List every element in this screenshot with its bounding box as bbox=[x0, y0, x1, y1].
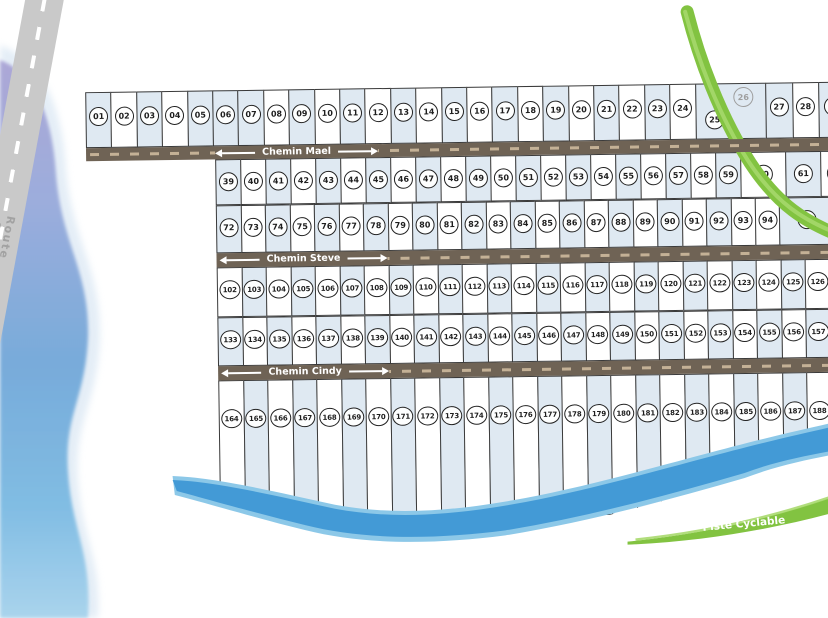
lot-number: 56 bbox=[644, 166, 663, 185]
lot-number: 51 bbox=[519, 168, 538, 187]
lot-86: 86 bbox=[559, 200, 585, 248]
lot-140: 140 bbox=[389, 315, 415, 364]
subdivision-plan-map: Route 295 010203040506070809101112131415… bbox=[0, 0, 828, 618]
lot-114: 114 bbox=[511, 263, 537, 313]
lot-157: 157 bbox=[805, 309, 828, 358]
lot-11: 11 bbox=[339, 88, 366, 144]
lot-number: 46 bbox=[394, 170, 413, 189]
lot-number: 79 bbox=[391, 216, 410, 235]
lot-number: 154 bbox=[734, 323, 755, 342]
lot-number: 19 bbox=[546, 100, 565, 119]
lot-number: 149 bbox=[612, 325, 633, 344]
lot-45: 45 bbox=[365, 157, 392, 203]
lot-168: 168 bbox=[316, 379, 343, 519]
lot-120: 120 bbox=[658, 261, 684, 311]
lot-144: 144 bbox=[487, 313, 513, 362]
arrow-line bbox=[222, 151, 255, 153]
lot-42: 42 bbox=[290, 158, 317, 204]
lot-17: 17 bbox=[492, 86, 519, 142]
lot-number: 121 bbox=[685, 274, 706, 293]
lot-number: 186 bbox=[760, 402, 781, 421]
lot-number: 112 bbox=[464, 277, 485, 296]
lot-number: 80 bbox=[415, 215, 434, 234]
lot-121: 121 bbox=[682, 261, 708, 311]
lot-number: 20 bbox=[572, 100, 591, 119]
lot-46: 46 bbox=[390, 157, 417, 203]
lot-156: 156 bbox=[781, 309, 807, 358]
lot-134: 134 bbox=[242, 317, 268, 366]
arrow-line bbox=[338, 150, 371, 152]
street-label-zone: Chemin Cindy bbox=[221, 364, 389, 380]
lot-122: 122 bbox=[707, 260, 733, 310]
lot-number: 125 bbox=[783, 272, 804, 291]
lot-178: 178 bbox=[561, 375, 588, 515]
lot-number: 136 bbox=[293, 329, 314, 348]
lot-60: 60 bbox=[740, 151, 787, 198]
lot-number: 178 bbox=[564, 404, 585, 423]
lot-number: 153 bbox=[710, 323, 731, 342]
lot-number: 50 bbox=[494, 168, 513, 187]
street-label-zone: Chemin Mael bbox=[215, 144, 378, 159]
lot-number: 117 bbox=[587, 275, 608, 294]
lot-10: 10 bbox=[314, 89, 341, 145]
lot-92: 92 bbox=[706, 198, 732, 246]
lot-61: 61 bbox=[785, 151, 822, 197]
lot-number: 24 bbox=[673, 99, 692, 118]
lot-176: 176 bbox=[512, 376, 539, 516]
lot-number: 168 bbox=[319, 408, 340, 427]
lot-23: 23 bbox=[644, 84, 671, 140]
lot-174: 174 bbox=[463, 377, 490, 517]
lot-18: 18 bbox=[517, 86, 544, 142]
lot-126: 126 bbox=[805, 259, 828, 309]
lot-number: 173 bbox=[441, 406, 462, 425]
lot-141: 141 bbox=[413, 314, 439, 363]
lot-number: 119 bbox=[636, 274, 657, 293]
street-name: Chemin Mael bbox=[255, 146, 338, 157]
lot-number: 76 bbox=[317, 217, 336, 236]
lot-135: 135 bbox=[266, 316, 292, 365]
lot-83: 83 bbox=[485, 201, 511, 249]
lot-number: 167 bbox=[294, 408, 315, 427]
lot-153: 153 bbox=[707, 310, 733, 359]
lot-number: 11 bbox=[343, 103, 362, 122]
lot-81: 81 bbox=[436, 202, 462, 250]
lot-180: 180 bbox=[610, 375, 637, 515]
lot-number: 165 bbox=[245, 409, 266, 428]
lot-number: 140 bbox=[391, 328, 412, 347]
lot-number: 21 bbox=[597, 100, 616, 119]
lot-39: 39 bbox=[215, 159, 242, 205]
lot-number: 170 bbox=[368, 407, 389, 426]
lot-142: 142 bbox=[438, 314, 464, 363]
lot-number: 44 bbox=[344, 170, 363, 189]
lot-number: 179 bbox=[588, 404, 609, 423]
lot-171: 171 bbox=[390, 378, 417, 518]
lot-21: 21 bbox=[593, 85, 620, 141]
lot-149: 149 bbox=[609, 312, 635, 361]
lot-number: 83 bbox=[489, 214, 508, 233]
lot-48: 48 bbox=[440, 156, 467, 202]
lot-number: 81 bbox=[440, 215, 459, 234]
lot-number: 17 bbox=[495, 101, 514, 120]
lot-183: 183 bbox=[684, 374, 711, 514]
lot-number: 123 bbox=[734, 273, 755, 292]
plat-grid: 0102030405060708091011121314151617181920… bbox=[0, 0, 828, 618]
lot-number: 60 bbox=[754, 165, 773, 184]
lot-number: 176 bbox=[515, 405, 536, 424]
lot-110: 110 bbox=[413, 264, 439, 314]
lot-number: 144 bbox=[489, 326, 510, 345]
lot-number: 157 bbox=[808, 322, 828, 341]
lot-167: 167 bbox=[292, 379, 319, 519]
lot-179: 179 bbox=[586, 375, 613, 515]
lot-number: 172 bbox=[417, 406, 438, 425]
lot-number: 29 bbox=[824, 97, 828, 116]
lot-number: 148 bbox=[587, 325, 608, 344]
lot-52: 52 bbox=[540, 154, 567, 200]
lot-06: 06 bbox=[212, 90, 239, 146]
lot-number: 182 bbox=[662, 403, 683, 422]
lot-number: 54 bbox=[594, 167, 613, 186]
lot-number: 177 bbox=[539, 405, 560, 424]
lot-95: 95 bbox=[779, 197, 828, 246]
lot-number: 09 bbox=[292, 104, 311, 123]
lot-91: 91 bbox=[681, 199, 707, 247]
lot-number: 58 bbox=[694, 165, 713, 184]
lot-151: 151 bbox=[658, 311, 684, 360]
lot-62: 62 bbox=[820, 151, 828, 197]
lot-number: 06 bbox=[216, 105, 235, 124]
lot-112: 112 bbox=[462, 264, 488, 314]
lot-number: 82 bbox=[464, 215, 483, 234]
lot-55: 55 bbox=[615, 153, 642, 199]
lot-85: 85 bbox=[534, 201, 560, 249]
lot-number: 52 bbox=[544, 168, 563, 187]
lot-number: 107 bbox=[342, 278, 363, 297]
lot-number: 05 bbox=[191, 105, 210, 124]
lot-number: 152 bbox=[685, 324, 706, 343]
arrow-line bbox=[227, 259, 260, 261]
lot-number: 187 bbox=[784, 401, 805, 420]
lot-number: 14 bbox=[419, 102, 438, 121]
lot-94: 94 bbox=[755, 198, 781, 246]
lot-105: 105 bbox=[290, 266, 316, 316]
lot-number: 91 bbox=[685, 212, 704, 231]
lot-137: 137 bbox=[315, 316, 341, 365]
lot-12: 12 bbox=[365, 88, 392, 144]
lot-87: 87 bbox=[583, 200, 609, 248]
lot-number: 188 bbox=[809, 401, 828, 420]
lot-138: 138 bbox=[340, 315, 366, 364]
lot-number: 166 bbox=[270, 408, 291, 427]
lot-number: 104 bbox=[268, 279, 289, 298]
lot-143: 143 bbox=[462, 314, 488, 363]
lot-number: 137 bbox=[318, 329, 339, 348]
lot-16: 16 bbox=[466, 87, 493, 143]
arrow-left-icon bbox=[215, 149, 222, 157]
lot-27: 27 bbox=[765, 82, 794, 138]
lot-169: 169 bbox=[341, 378, 368, 518]
lot-number: 23 bbox=[648, 99, 667, 118]
lot-76: 76 bbox=[314, 204, 340, 252]
lot-number: 15 bbox=[445, 102, 464, 121]
lot-104: 104 bbox=[266, 266, 292, 316]
lot-number: 49 bbox=[469, 169, 488, 188]
arrow-line bbox=[349, 370, 382, 372]
lot-number: 02 bbox=[114, 107, 133, 126]
lot-number: 40 bbox=[244, 172, 263, 191]
lot-106: 106 bbox=[315, 266, 341, 316]
lot-47: 47 bbox=[415, 156, 442, 202]
lot-number: 105 bbox=[293, 279, 314, 298]
lot-145: 145 bbox=[511, 313, 537, 362]
lot-147: 147 bbox=[560, 312, 586, 361]
lot-number: 48 bbox=[444, 169, 463, 188]
lot-number: 28 bbox=[796, 97, 815, 116]
street-name: Chemin Steve bbox=[260, 254, 348, 265]
lot-number: 03 bbox=[140, 106, 159, 125]
lot-number: 53 bbox=[569, 167, 588, 186]
lot-20: 20 bbox=[568, 85, 595, 141]
lot-number: 110 bbox=[415, 277, 436, 296]
lot-148: 148 bbox=[585, 312, 611, 361]
lot-number: 89 bbox=[636, 212, 655, 231]
arrow-left-icon bbox=[219, 256, 226, 264]
arrow-left-icon bbox=[221, 369, 228, 377]
lot-number: 103 bbox=[244, 280, 265, 299]
lot-number: 16 bbox=[470, 102, 489, 121]
lot-number: 01 bbox=[89, 107, 108, 126]
lot-102: 102 bbox=[217, 267, 243, 317]
lot-number: 134 bbox=[244, 330, 265, 349]
lot-number: 139 bbox=[367, 328, 388, 347]
lot-number: 118 bbox=[611, 275, 632, 294]
lot-number: 88 bbox=[611, 213, 630, 232]
lot-number: 39 bbox=[219, 172, 238, 191]
lot-181: 181 bbox=[635, 374, 662, 514]
arrow-right-icon bbox=[382, 367, 389, 375]
lot-82: 82 bbox=[461, 202, 487, 250]
lot-number: 174 bbox=[466, 406, 487, 425]
lot-number: 93 bbox=[734, 211, 753, 230]
lot-number: 59 bbox=[719, 165, 738, 184]
lot-14: 14 bbox=[415, 87, 442, 143]
lot-175: 175 bbox=[488, 376, 515, 516]
lot-136: 136 bbox=[291, 316, 317, 365]
lot-number: 133 bbox=[220, 330, 241, 349]
lot-164: 164 bbox=[218, 380, 245, 520]
lot-number: 175 bbox=[490, 405, 511, 424]
lot-113: 113 bbox=[486, 263, 512, 313]
lot-123: 123 bbox=[731, 260, 757, 310]
lot-89: 89 bbox=[632, 199, 658, 247]
lot-118: 118 bbox=[609, 262, 635, 312]
lot-177: 177 bbox=[537, 376, 564, 516]
lot-170: 170 bbox=[365, 378, 392, 518]
lot-58: 58 bbox=[690, 152, 717, 198]
lot-number: 124 bbox=[758, 273, 779, 292]
lot-number: 78 bbox=[366, 216, 385, 235]
lot-number: 108 bbox=[366, 278, 387, 297]
lot-74: 74 bbox=[265, 204, 291, 252]
lot-number: 57 bbox=[669, 166, 688, 185]
lot-number: 61 bbox=[794, 164, 813, 183]
lot-116: 116 bbox=[560, 262, 586, 312]
lot-number: 13 bbox=[394, 103, 413, 122]
lot-78: 78 bbox=[363, 203, 389, 251]
lot-51: 51 bbox=[515, 155, 542, 201]
arrow-right-icon bbox=[371, 147, 378, 155]
lot-77: 77 bbox=[338, 203, 364, 251]
lot-152: 152 bbox=[683, 311, 709, 360]
lot-107: 107 bbox=[339, 265, 365, 315]
lot-number: 115 bbox=[538, 276, 559, 295]
lot-103: 103 bbox=[241, 267, 267, 317]
lot-number: 55 bbox=[619, 166, 638, 185]
arrow-line bbox=[228, 372, 261, 374]
lot-number: 116 bbox=[562, 275, 583, 294]
lot-number: 47 bbox=[419, 169, 438, 188]
lot-72: 72 bbox=[216, 205, 242, 253]
lot-41: 41 bbox=[265, 158, 292, 204]
bike-path-label: Piste Cyclable bbox=[702, 514, 786, 534]
lot-188: 188 bbox=[806, 372, 828, 512]
lot-number: 86 bbox=[562, 213, 581, 232]
lot-number: 12 bbox=[368, 103, 387, 122]
lot-02: 02 bbox=[111, 91, 138, 147]
lot-184: 184 bbox=[708, 373, 735, 513]
lot-number: 143 bbox=[465, 327, 486, 346]
lot-80: 80 bbox=[412, 202, 438, 250]
lot-24: 24 bbox=[669, 84, 696, 140]
lot-number: 151 bbox=[661, 324, 682, 343]
lot-22: 22 bbox=[619, 84, 646, 140]
lot-146: 146 bbox=[536, 313, 562, 362]
lot-number: 41 bbox=[269, 171, 288, 190]
lot-number: 27 bbox=[769, 97, 788, 116]
lot-57: 57 bbox=[665, 153, 692, 199]
lot-117: 117 bbox=[584, 262, 610, 312]
arrow-line bbox=[347, 257, 380, 259]
lot-115: 115 bbox=[535, 263, 561, 313]
lot-number: 22 bbox=[622, 99, 641, 118]
lot-56: 56 bbox=[640, 153, 667, 199]
lot-155: 155 bbox=[756, 309, 782, 358]
lot-number: 77 bbox=[342, 216, 361, 235]
lot-number: 106 bbox=[317, 279, 338, 298]
lot-number: 146 bbox=[538, 326, 559, 345]
lot-13: 13 bbox=[390, 88, 417, 144]
lot-number: 164 bbox=[221, 409, 242, 428]
lot-number: 90 bbox=[660, 212, 679, 231]
lot-number: 111 bbox=[440, 277, 461, 296]
lot-59: 59 bbox=[715, 152, 742, 198]
lot-44: 44 bbox=[340, 157, 367, 203]
lot-133: 133 bbox=[217, 317, 243, 366]
lot-93: 93 bbox=[730, 198, 756, 246]
lot-182: 182 bbox=[659, 374, 686, 514]
lot-number: 84 bbox=[513, 214, 532, 233]
lot-number: 122 bbox=[709, 273, 730, 292]
lot-166: 166 bbox=[267, 379, 294, 519]
lot-186: 186 bbox=[757, 372, 784, 512]
lot-number: 185 bbox=[735, 402, 756, 421]
lot-111: 111 bbox=[437, 264, 463, 314]
lot-number: 120 bbox=[660, 274, 681, 293]
lot-84: 84 bbox=[510, 201, 536, 249]
lot-29: 29 bbox=[818, 82, 828, 138]
lot-number: 25 bbox=[705, 110, 724, 129]
lot-187: 187 bbox=[782, 372, 809, 512]
lot-number: 183 bbox=[686, 403, 707, 422]
lot-79: 79 bbox=[387, 203, 413, 251]
lot-number: 135 bbox=[269, 329, 290, 348]
lot-28: 28 bbox=[792, 82, 820, 138]
lot-number: 181 bbox=[637, 403, 658, 422]
lot-07: 07 bbox=[238, 90, 265, 146]
lot-number: 138 bbox=[342, 328, 363, 347]
lot-19: 19 bbox=[542, 85, 569, 141]
lot-04: 04 bbox=[161, 91, 188, 147]
lot-108: 108 bbox=[364, 265, 390, 315]
lot-15: 15 bbox=[441, 87, 468, 143]
lot-49: 49 bbox=[465, 156, 492, 202]
lot-90: 90 bbox=[657, 199, 683, 247]
lot-01: 01 bbox=[85, 92, 112, 148]
lot-number: 109 bbox=[391, 278, 412, 297]
lot-05: 05 bbox=[187, 90, 214, 146]
lot-number: 92 bbox=[709, 211, 728, 230]
lot-number: 42 bbox=[294, 171, 313, 190]
lot-number: 45 bbox=[369, 170, 388, 189]
lot-124: 124 bbox=[756, 260, 782, 310]
lot-number: 156 bbox=[783, 322, 804, 341]
lot-number: 04 bbox=[165, 106, 184, 125]
lot-number: 73 bbox=[244, 218, 263, 237]
lot-40: 40 bbox=[240, 159, 267, 205]
lot-number: 08 bbox=[267, 104, 286, 123]
lot-53: 53 bbox=[565, 154, 592, 200]
lot-number: 141 bbox=[416, 327, 437, 346]
street-name: Chemin Cindy bbox=[261, 367, 349, 378]
lot-25: 25 bbox=[695, 83, 767, 140]
lot-number: 102 bbox=[219, 280, 240, 299]
lot-172: 172 bbox=[414, 377, 441, 517]
lot-number: 43 bbox=[319, 171, 338, 190]
lot-number: 94 bbox=[758, 211, 777, 230]
lot-number: 10 bbox=[318, 104, 337, 123]
lot-43: 43 bbox=[315, 158, 342, 204]
lot-number: 85 bbox=[538, 214, 557, 233]
lot-119: 119 bbox=[633, 261, 659, 311]
lot-50: 50 bbox=[490, 155, 517, 201]
lot-number: 95 bbox=[797, 210, 816, 229]
lot-54: 54 bbox=[590, 154, 617, 200]
lot-number: 171 bbox=[392, 407, 413, 426]
lot-number: 155 bbox=[759, 323, 780, 342]
lot-number: 07 bbox=[241, 105, 260, 124]
arrow-right-icon bbox=[380, 254, 387, 262]
lot-09: 09 bbox=[288, 89, 315, 145]
lot-number: 150 bbox=[636, 324, 657, 343]
lot-number: 180 bbox=[613, 404, 634, 423]
lot-row-6: 1641651661671681691701711721731741751761… bbox=[3, 372, 828, 524]
lot-number: 145 bbox=[514, 326, 535, 345]
lot-number: 113 bbox=[489, 276, 510, 295]
lot-number: 184 bbox=[711, 402, 732, 421]
lot-number: 114 bbox=[513, 276, 534, 295]
